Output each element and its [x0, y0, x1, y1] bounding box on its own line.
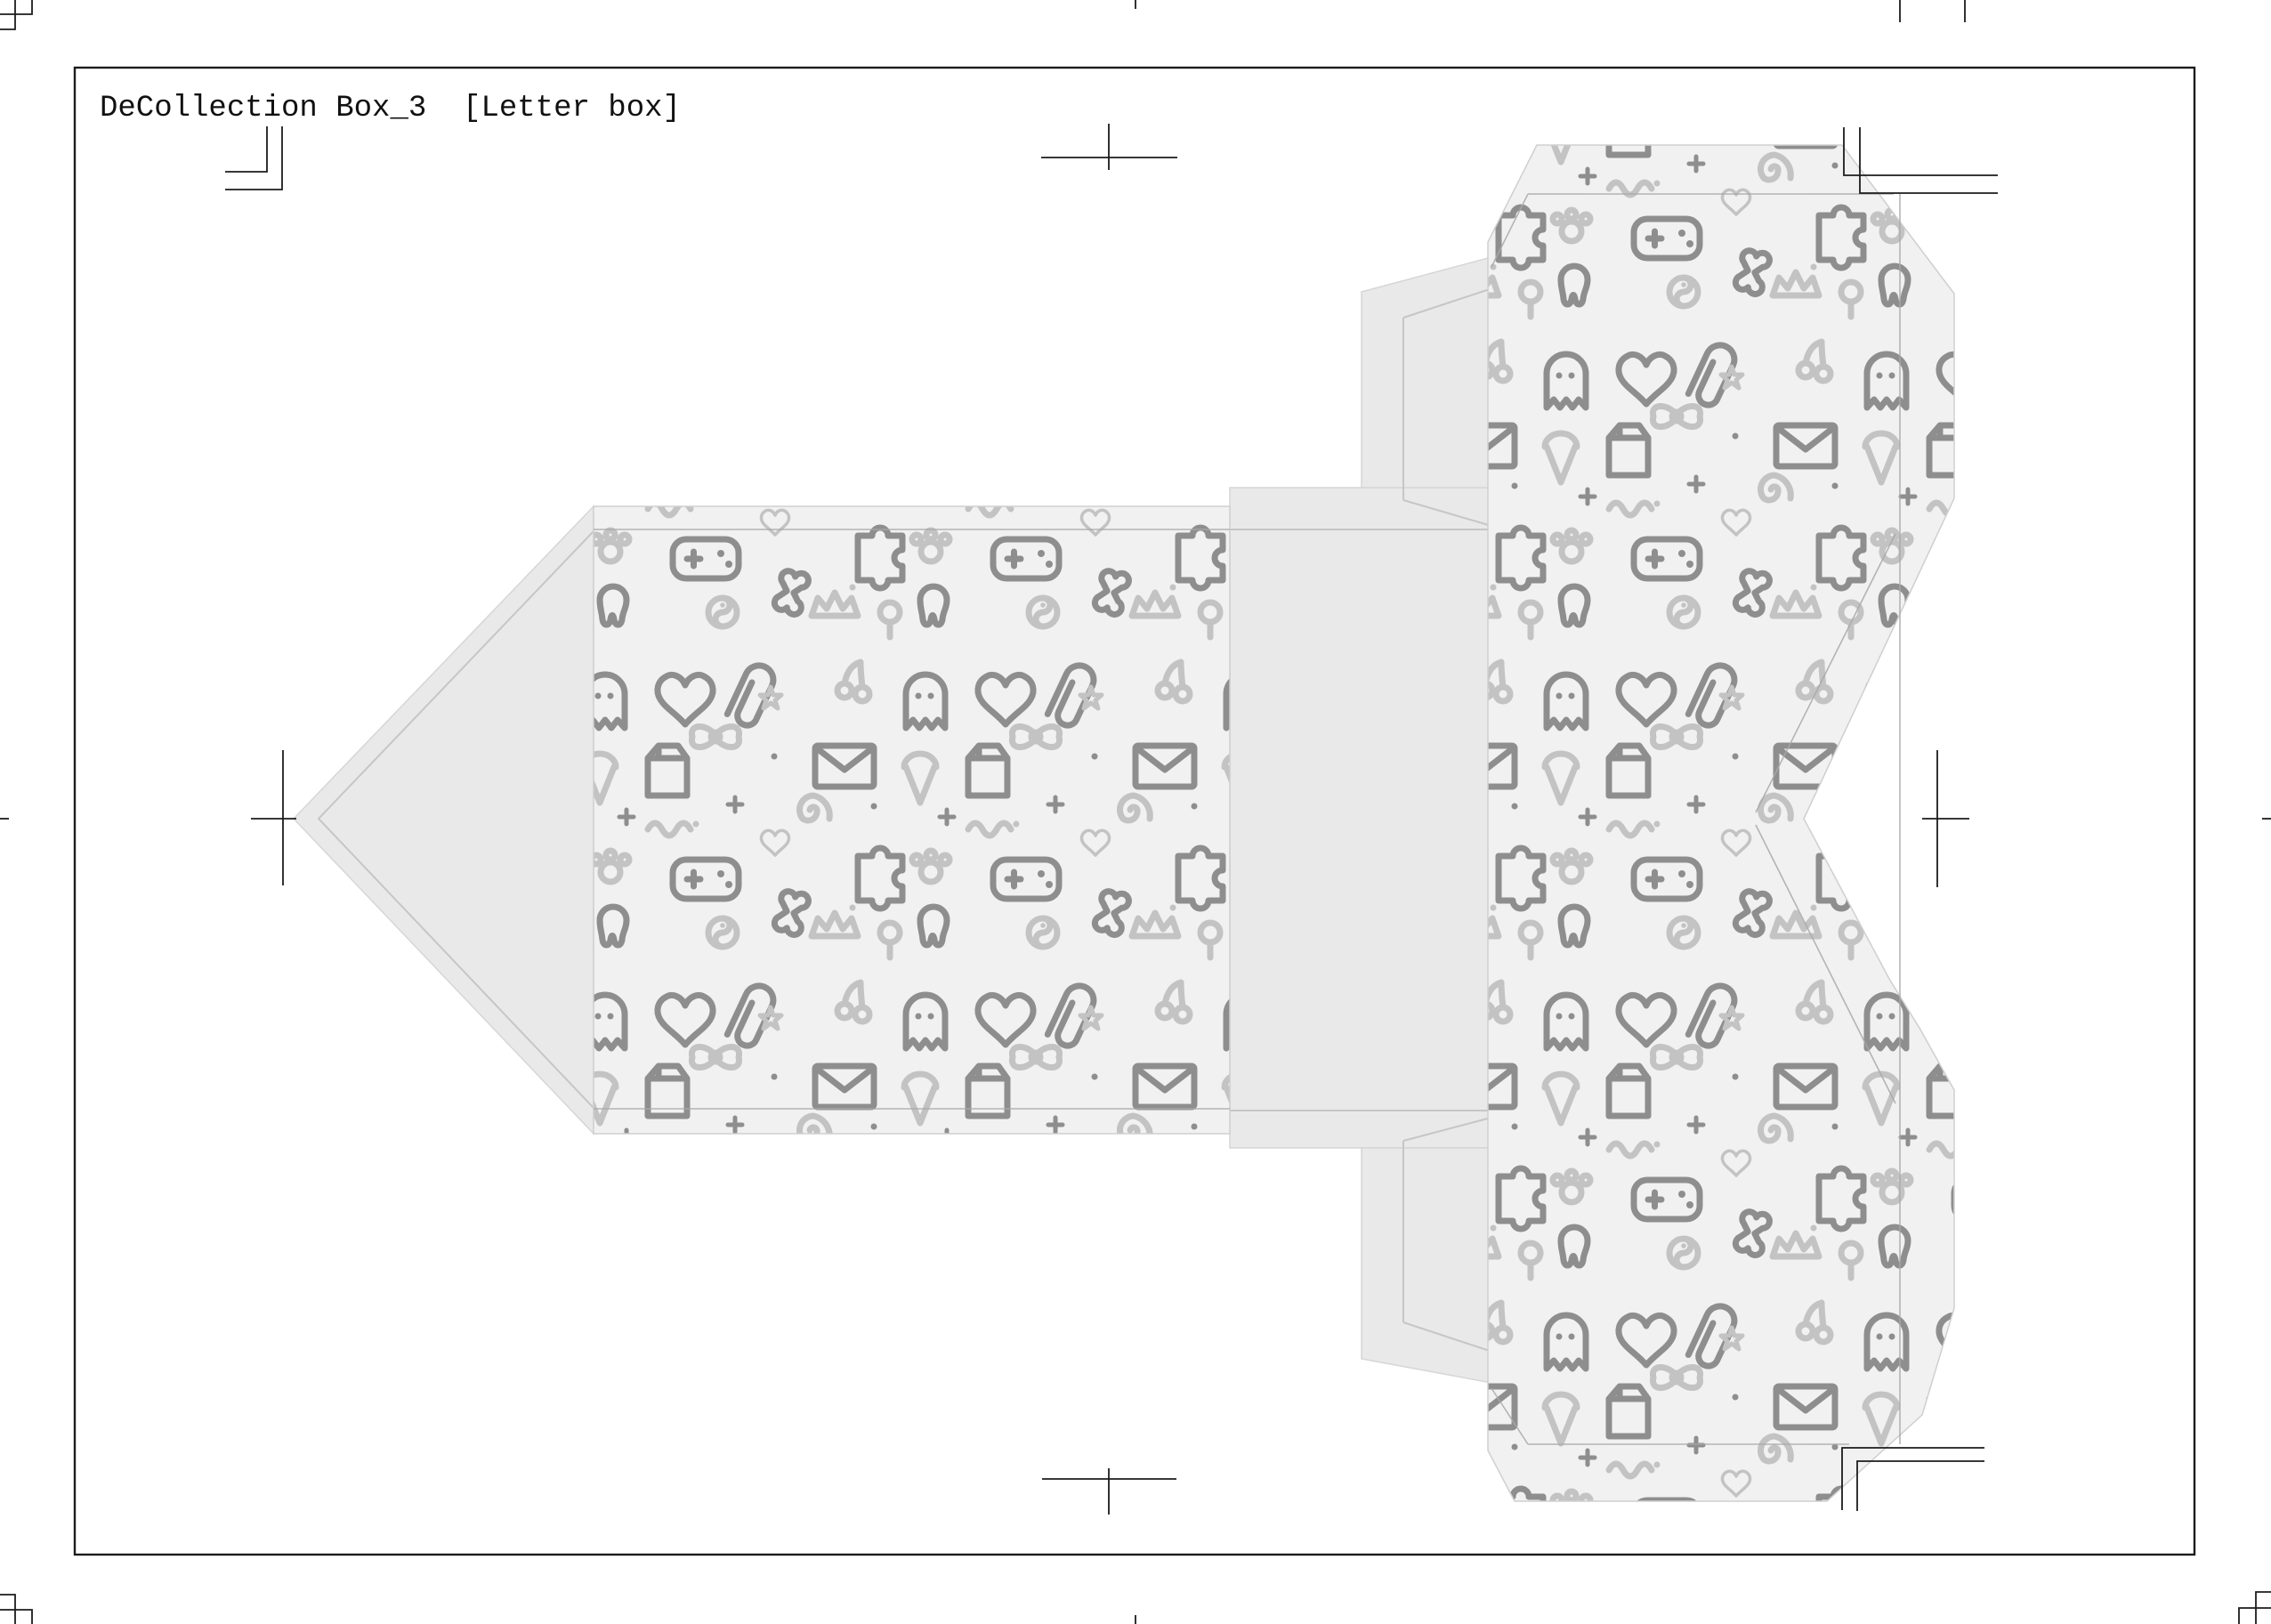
- center-cross-mark: [251, 750, 296, 885]
- corner-trim-mark: [225, 126, 282, 190]
- glue-flap-bottom: [1362, 1148, 1501, 1385]
- center-cross-mark: [1041, 124, 1177, 170]
- center-cross-mark: [1922, 750, 1969, 887]
- front-panel-pattern: [594, 506, 1230, 1134]
- template-drawing: [0, 0, 2271, 1624]
- corner-trim-mark: [0, 1595, 32, 1624]
- glue-flap-top: [1362, 255, 1501, 488]
- center-cross-mark: [1042, 1468, 1176, 1515]
- glue-area-middle: [1230, 488, 1501, 1148]
- envelope-flap-triangle: [294, 506, 594, 1134]
- edge-tick-mark: [1900, 0, 1965, 22]
- template-page: DeCollection Box_3 [Letter box]: [0, 0, 2271, 1624]
- page-title: DeCollection Box_3 [Letter box]: [100, 92, 681, 125]
- corner-trim-mark: [0, 0, 32, 29]
- body-panel-pattern: [1488, 145, 1954, 1501]
- corner-trim-mark: [2239, 1592, 2271, 1624]
